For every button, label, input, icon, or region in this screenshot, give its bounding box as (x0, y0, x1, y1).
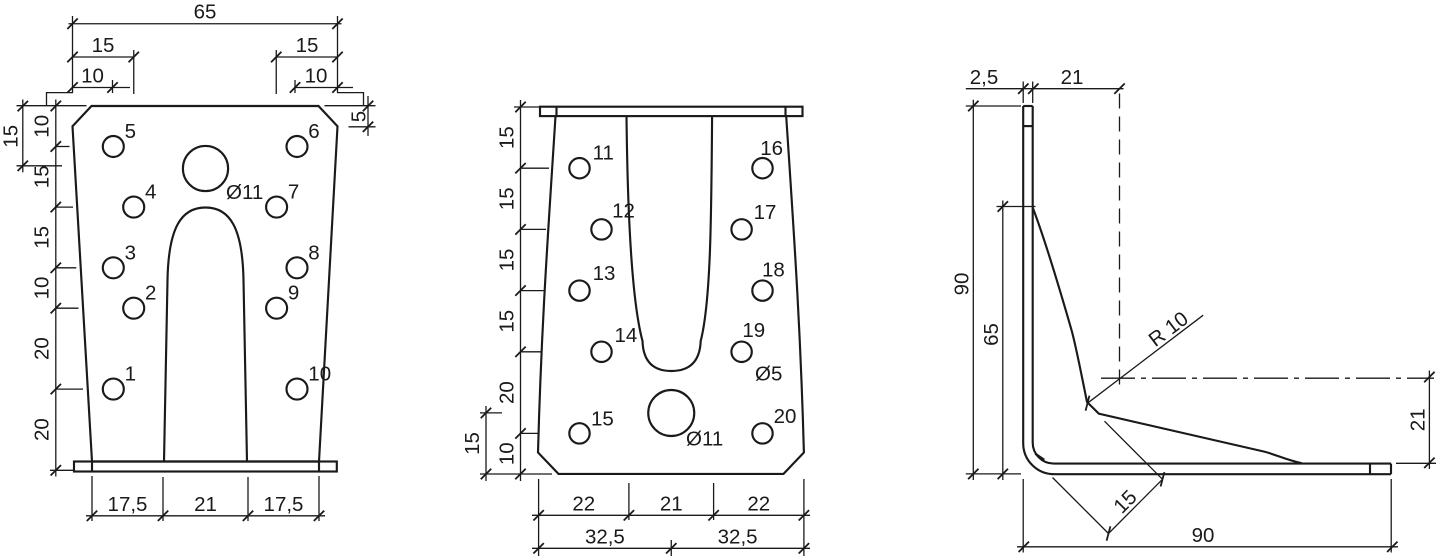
svg-text:21: 21 (1406, 408, 1429, 431)
svg-text:4: 4 (145, 181, 156, 204)
svg-text:Ø11: Ø11 (226, 181, 263, 204)
svg-text:13: 13 (593, 262, 616, 285)
svg-text:12: 12 (612, 200, 635, 223)
svg-text:90: 90 (951, 273, 974, 296)
svg-text:15: 15 (591, 407, 614, 430)
svg-text:8: 8 (308, 241, 319, 264)
svg-text:19: 19 (742, 319, 765, 342)
svg-text:15: 15 (495, 187, 518, 210)
svg-text:21: 21 (1061, 66, 1084, 89)
svg-text:65: 65 (194, 1, 217, 24)
svg-text:2: 2 (145, 282, 156, 305)
svg-text:5: 5 (348, 111, 371, 122)
svg-text:15: 15 (30, 226, 53, 249)
svg-text:15: 15 (495, 126, 518, 149)
svg-text:9: 9 (288, 282, 299, 305)
svg-text:21: 21 (660, 493, 683, 516)
svg-text:32,5: 32,5 (718, 526, 758, 549)
svg-text:10: 10 (305, 65, 328, 88)
svg-text:15: 15 (461, 432, 484, 455)
svg-text:7: 7 (288, 181, 299, 204)
svg-text:10: 10 (30, 115, 53, 138)
svg-text:17: 17 (754, 201, 777, 224)
svg-text:22: 22 (572, 493, 595, 516)
svg-text:21: 21 (194, 493, 217, 516)
svg-text:15: 15 (30, 165, 53, 188)
svg-text:20: 20 (30, 418, 53, 441)
svg-text:15: 15 (0, 125, 23, 148)
svg-text:20: 20 (495, 381, 518, 404)
svg-text:5: 5 (125, 120, 136, 143)
svg-text:10: 10 (81, 65, 104, 88)
svg-text:11: 11 (593, 142, 614, 165)
svg-text:32,5: 32,5 (585, 526, 625, 549)
svg-text:17,5: 17,5 (264, 493, 304, 516)
svg-text:22: 22 (747, 493, 770, 516)
svg-text:65: 65 (980, 323, 1003, 346)
svg-text:1: 1 (125, 363, 136, 386)
svg-text:16: 16 (760, 137, 783, 160)
svg-text:Ø5: Ø5 (755, 362, 782, 385)
svg-text:20: 20 (30, 337, 53, 360)
svg-text:17,5: 17,5 (108, 493, 148, 516)
svg-text:Ø11: Ø11 (686, 428, 723, 451)
svg-text:18: 18 (762, 258, 785, 281)
svg-text:15: 15 (495, 310, 518, 333)
svg-text:20: 20 (774, 405, 797, 428)
svg-text:2,5: 2,5 (970, 66, 999, 89)
svg-text:15: 15 (92, 34, 115, 57)
svg-text:10: 10 (495, 442, 518, 465)
svg-text:10: 10 (308, 363, 331, 386)
svg-text:10: 10 (30, 277, 53, 300)
svg-text:15: 15 (495, 249, 518, 272)
svg-text:14: 14 (615, 324, 638, 347)
svg-text:15: 15 (296, 34, 319, 57)
svg-text:3: 3 (125, 241, 136, 264)
svg-text:6: 6 (308, 120, 319, 143)
svg-text:90: 90 (1192, 524, 1215, 547)
